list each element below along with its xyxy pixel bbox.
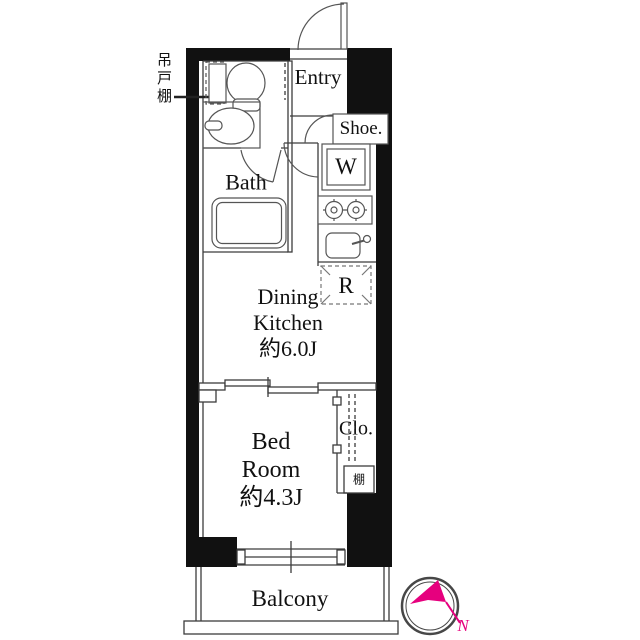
balcony-window bbox=[237, 541, 345, 573]
balcony-label: Balcony bbox=[252, 587, 329, 611]
floor-plan: Entry Shoe. W Bath Dining Kitchen 約6.0J … bbox=[0, 0, 640, 640]
bed-room-label: Bed Room 約4.3J bbox=[239, 428, 302, 512]
refrigerator-label: R bbox=[338, 274, 353, 298]
sliding-door bbox=[225, 377, 318, 397]
hanging-cupboard-label: 吊戸棚 bbox=[153, 52, 174, 106]
shoe-cabinet-door bbox=[305, 115, 333, 143]
toilet-icon bbox=[206, 62, 265, 111]
dining-kitchen-line1: Dining bbox=[253, 284, 323, 310]
washer-label: W bbox=[335, 155, 357, 179]
dining-kitchen-area: 約6.0J bbox=[253, 336, 323, 362]
compass-icon bbox=[402, 578, 460, 634]
stove-icon bbox=[318, 196, 372, 224]
shoe-label: Shoe. bbox=[340, 119, 383, 139]
bed-room-line2: Room bbox=[239, 456, 302, 484]
bed-room-area: 約4.3J bbox=[239, 484, 302, 512]
dining-kitchen-line2: Kitchen bbox=[253, 310, 323, 336]
bathtub-icon bbox=[212, 198, 286, 248]
bed-room-line1: Bed bbox=[239, 428, 302, 456]
bath-label: Bath bbox=[225, 170, 267, 193]
dining-kitchen-label: Dining Kitchen 約6.0J bbox=[253, 284, 323, 362]
entry-door bbox=[298, 3, 347, 50]
shelf-label: 棚 bbox=[353, 474, 365, 487]
entry-label: Entry bbox=[295, 66, 342, 88]
compass-north-label: N bbox=[457, 617, 468, 635]
closet-label: Clo. bbox=[339, 419, 373, 440]
kitchen-sink-icon bbox=[326, 233, 371, 258]
